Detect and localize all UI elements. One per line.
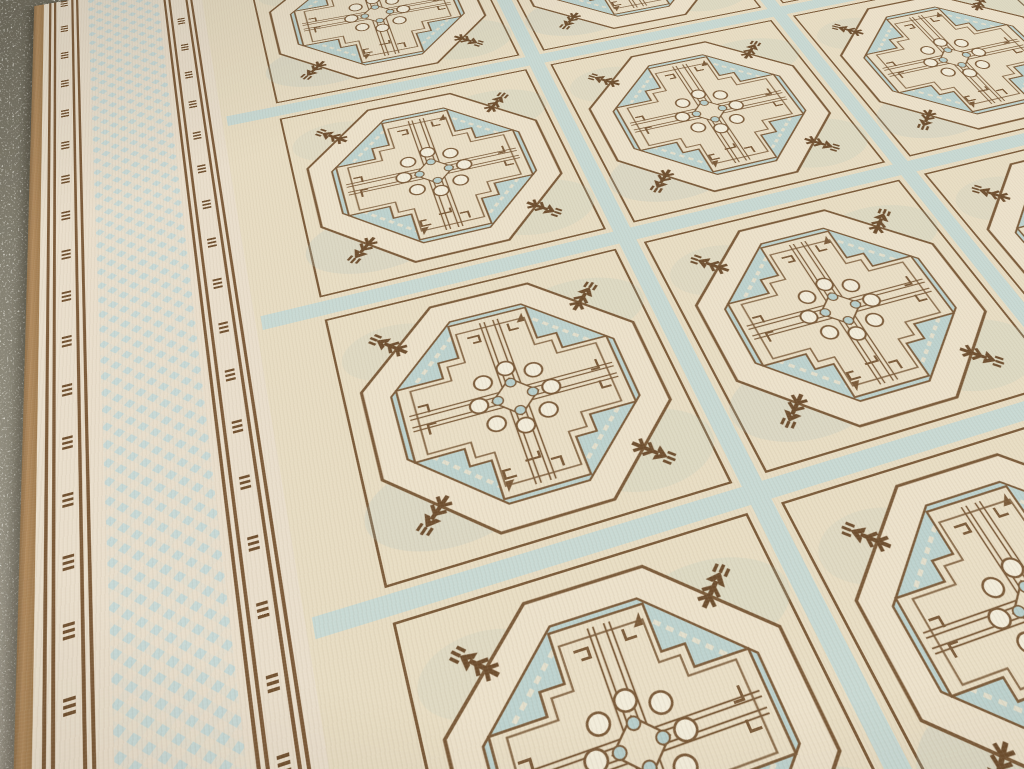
- rug: [0, 0, 1024, 769]
- photo-scene: [0, 0, 1024, 769]
